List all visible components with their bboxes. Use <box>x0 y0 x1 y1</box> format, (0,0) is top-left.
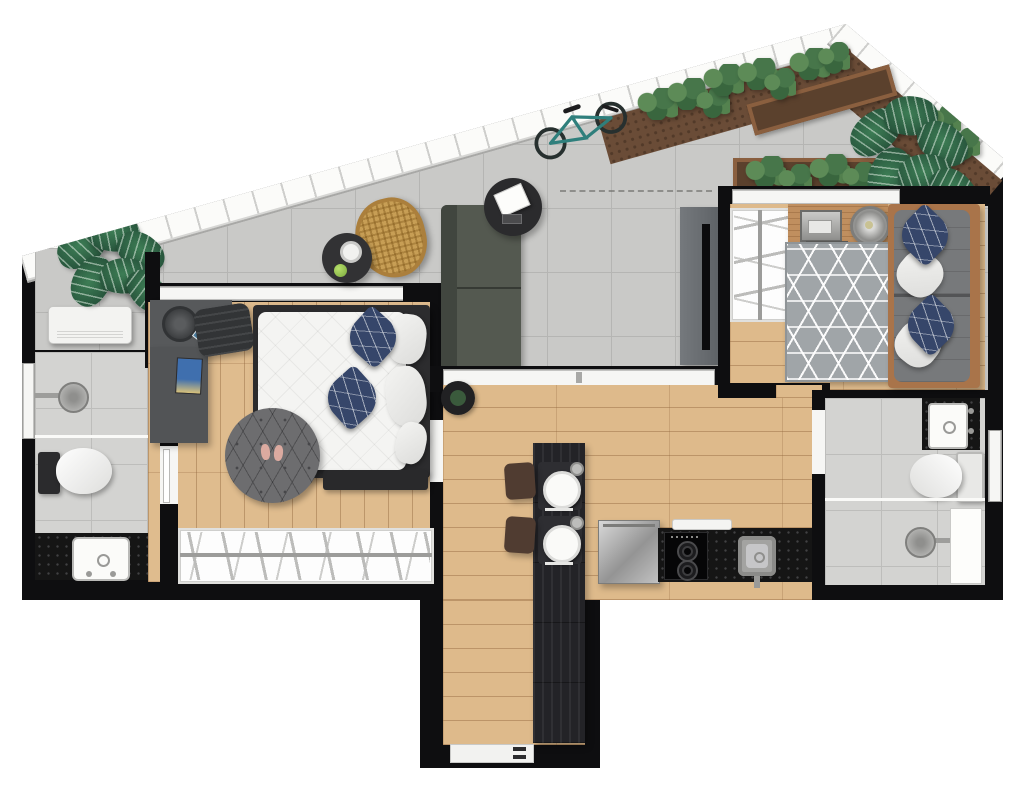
coffee-cup <box>340 241 362 263</box>
typewriter-laptop <box>800 210 842 242</box>
door-handle-mark <box>513 755 526 759</box>
bathroom2-exterior-window <box>988 430 1002 502</box>
building-footprint <box>0 0 1024 796</box>
sink-drain <box>943 421 956 434</box>
remote <box>502 214 522 224</box>
shrub <box>816 42 850 74</box>
faucet <box>754 576 760 588</box>
bathroom1-sink <box>72 537 130 581</box>
cutlery <box>545 562 573 565</box>
toilet-bowl <box>910 454 962 498</box>
round-rug <box>225 408 320 503</box>
glass <box>570 516 584 530</box>
bowl-center <box>865 221 873 229</box>
faucet-knob <box>968 408 974 414</box>
roof-projection-dashed-line <box>560 190 712 192</box>
faucet-knob <box>110 571 116 577</box>
magazine <box>175 357 203 394</box>
bedroom2-window <box>732 189 900 205</box>
sink-drain <box>97 554 110 567</box>
kitchen-sink <box>738 536 776 576</box>
bathroom1-door-leaf <box>163 449 170 503</box>
laptop-keys <box>808 220 832 234</box>
cooktop-controls <box>671 536 699 538</box>
door-mullion <box>576 372 582 383</box>
dinner-plate <box>543 471 581 509</box>
cube-pattern-rug <box>785 242 892 382</box>
entry-door-threshold <box>450 744 534 763</box>
sink-drain <box>754 552 765 563</box>
glass <box>570 462 584 476</box>
tv-panel <box>680 207 718 365</box>
bedroom2-clothes-rack <box>730 208 792 322</box>
bathroom2-door-opening <box>812 410 825 474</box>
bed-foot-bench <box>323 470 428 490</box>
office-chair <box>193 302 256 358</box>
bedroom2-left-wall <box>718 186 730 396</box>
bathroom1-exterior-window <box>22 363 35 439</box>
bedroom1-door-opening <box>430 420 443 482</box>
cushion-seam <box>457 287 521 289</box>
sofa-backrest <box>441 205 457 372</box>
green-apple <box>334 264 347 277</box>
dish-shelf <box>672 519 732 530</box>
appliance-handle <box>603 524 655 527</box>
shower-niche <box>950 508 982 584</box>
burner <box>677 541 698 562</box>
bedroom1-clothes-rack <box>178 528 434 584</box>
floor-plan <box>0 0 1024 796</box>
cooktop <box>664 532 708 580</box>
dinner-plate <box>543 525 581 563</box>
door-handle-mark <box>513 747 526 751</box>
ac-condenser-unit <box>48 306 132 344</box>
metal-bowl <box>850 206 890 246</box>
shower-head <box>58 382 89 413</box>
faucet-knob <box>968 428 974 434</box>
faucet-knob <box>86 571 92 577</box>
bedroom1-sliding-window <box>158 286 405 301</box>
toilet-bowl <box>56 448 112 494</box>
burner <box>677 560 698 581</box>
stool <box>504 462 536 500</box>
shower-head <box>905 527 936 558</box>
stool <box>504 516 536 554</box>
ac-vent-lines <box>57 331 123 338</box>
bathroom1-shower-divider <box>35 435 160 438</box>
tv-screen-edge <box>702 224 710 350</box>
stainless-appliance <box>598 520 660 584</box>
cutlery <box>545 508 573 511</box>
closet-rod <box>180 553 432 557</box>
bathroom2-sink <box>928 403 968 449</box>
bathroom2-shower-divider <box>825 498 985 501</box>
potted-plant <box>441 381 475 415</box>
closet-rod <box>758 210 762 320</box>
